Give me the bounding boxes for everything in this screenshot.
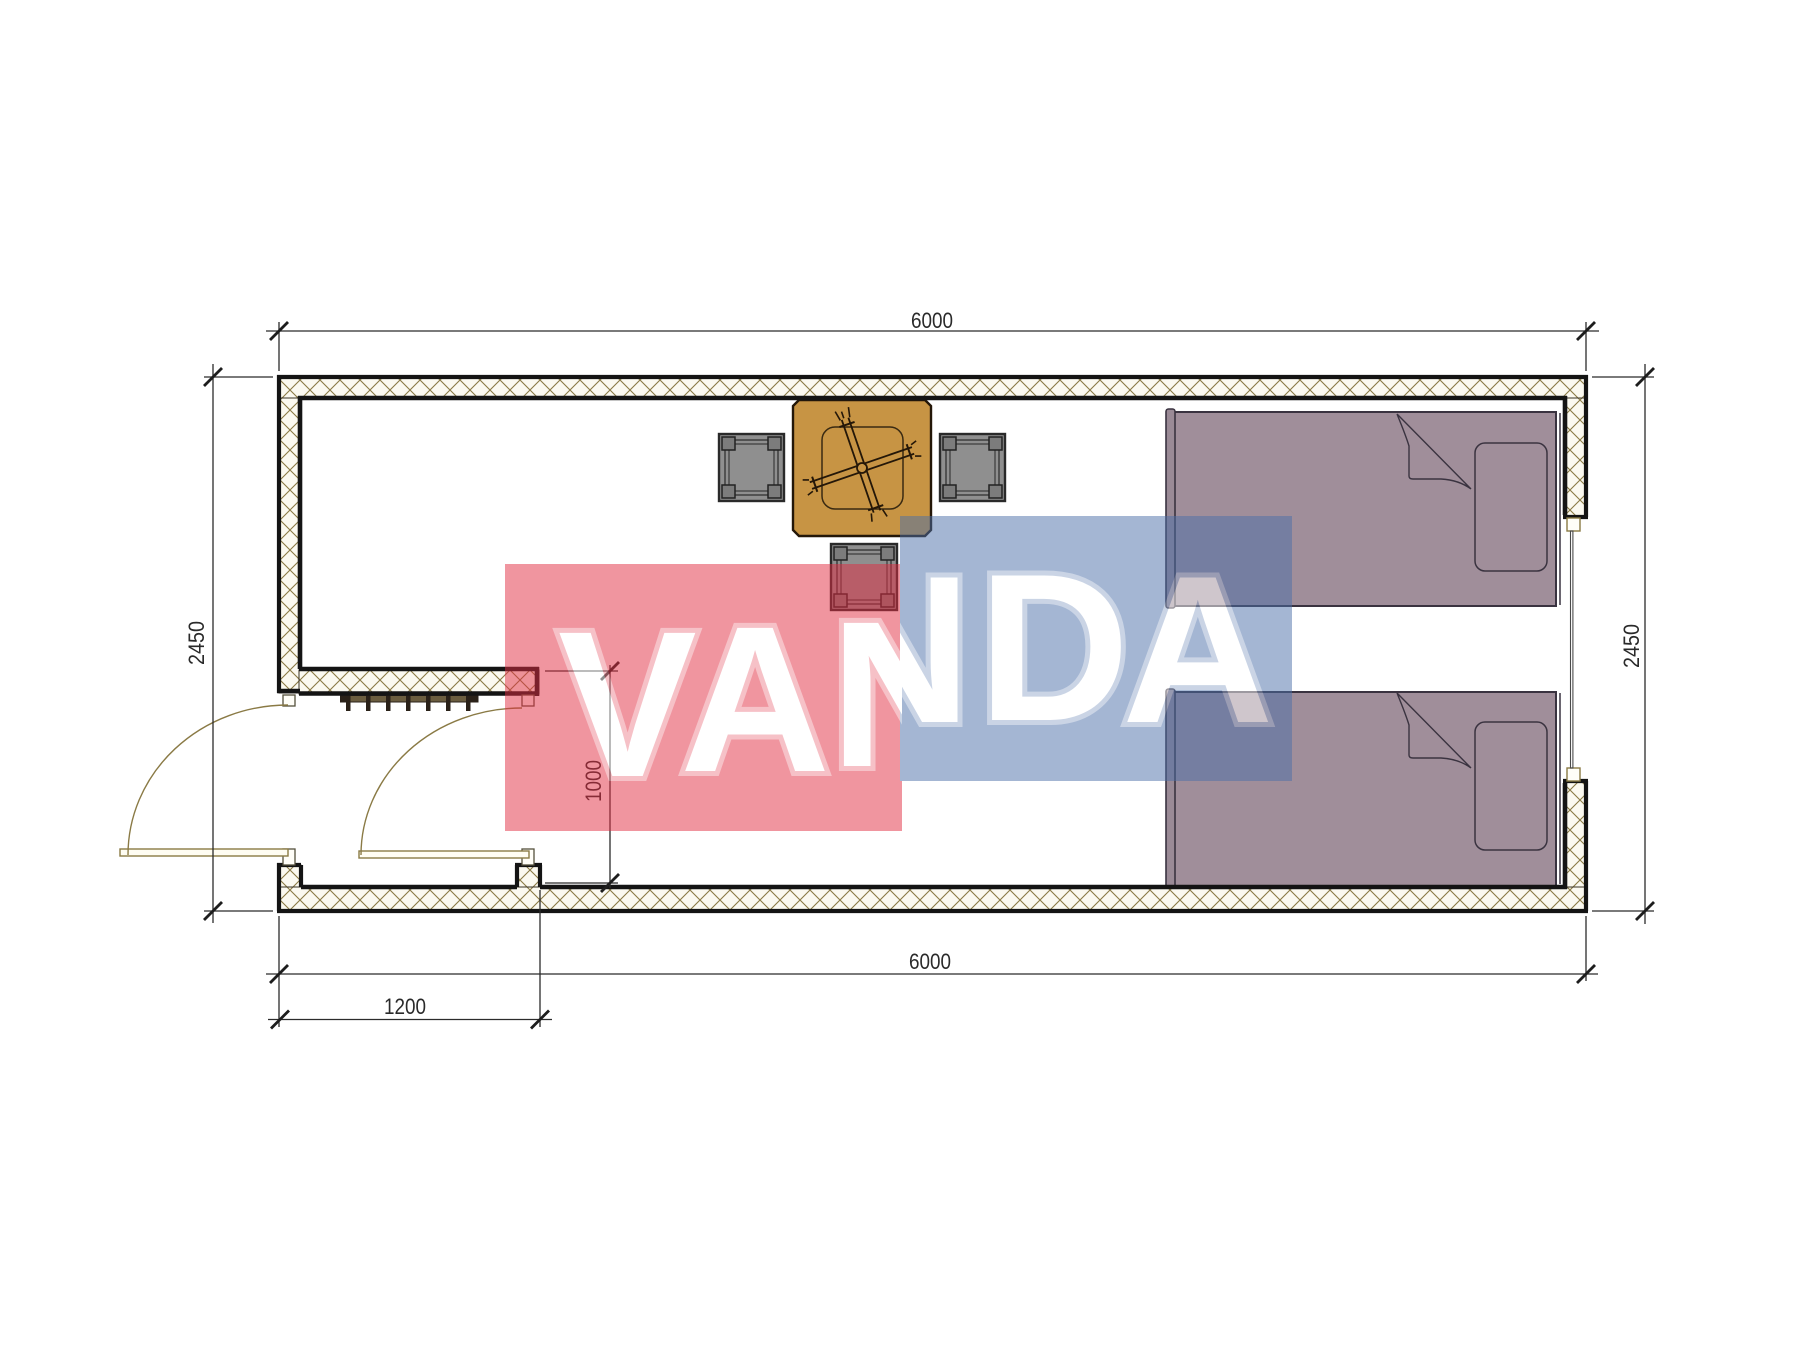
svg-text:A: A	[680, 584, 830, 816]
svg-text:V: V	[558, 589, 697, 821]
svg-text:1200: 1200	[384, 994, 426, 1019]
svg-text:A: A	[1122, 532, 1274, 767]
svg-text:6000: 6000	[911, 308, 953, 333]
svg-text:2450: 2450	[1619, 624, 1644, 668]
svg-text:6000: 6000	[909, 949, 951, 974]
svg-text:2450: 2450	[184, 621, 209, 665]
svg-text:D: D	[978, 530, 1130, 765]
